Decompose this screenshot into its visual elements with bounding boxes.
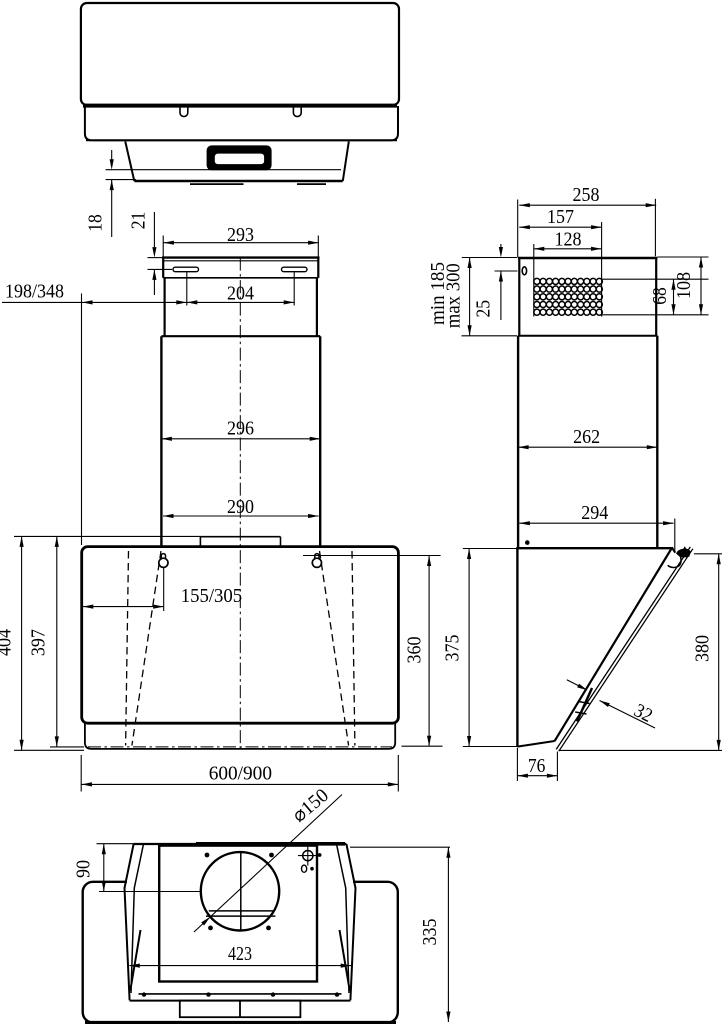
svg-text:262: 262: [573, 427, 600, 448]
svg-text:360: 360: [405, 637, 426, 664]
svg-text:294: 294: [581, 503, 608, 524]
svg-text:157: 157: [547, 207, 574, 228]
svg-text:290: 290: [227, 497, 254, 518]
svg-text:335: 335: [420, 919, 441, 946]
svg-text:380: 380: [692, 635, 713, 662]
svg-text:108: 108: [674, 272, 695, 299]
svg-text:375: 375: [443, 635, 464, 662]
svg-text:404: 404: [0, 629, 16, 656]
svg-text:76: 76: [528, 756, 546, 777]
svg-text:25: 25: [474, 300, 495, 318]
svg-text:128: 128: [555, 229, 582, 250]
svg-text:155/305: 155/305: [181, 586, 243, 607]
svg-text:296: 296: [227, 419, 254, 440]
svg-text:600/900: 600/900: [209, 764, 272, 785]
svg-text:293: 293: [227, 225, 254, 246]
svg-text:21: 21: [129, 212, 150, 230]
svg-text:258: 258: [573, 185, 600, 206]
svg-text:max 300: max 300: [443, 263, 464, 328]
svg-text:18: 18: [86, 214, 107, 232]
svg-text:397: 397: [29, 629, 50, 656]
svg-text:90: 90: [73, 860, 94, 878]
svg-text:68: 68: [650, 287, 671, 305]
svg-text:204: 204: [227, 283, 254, 304]
svg-text:423: 423: [228, 944, 252, 965]
svg-text:198/348: 198/348: [5, 281, 64, 302]
